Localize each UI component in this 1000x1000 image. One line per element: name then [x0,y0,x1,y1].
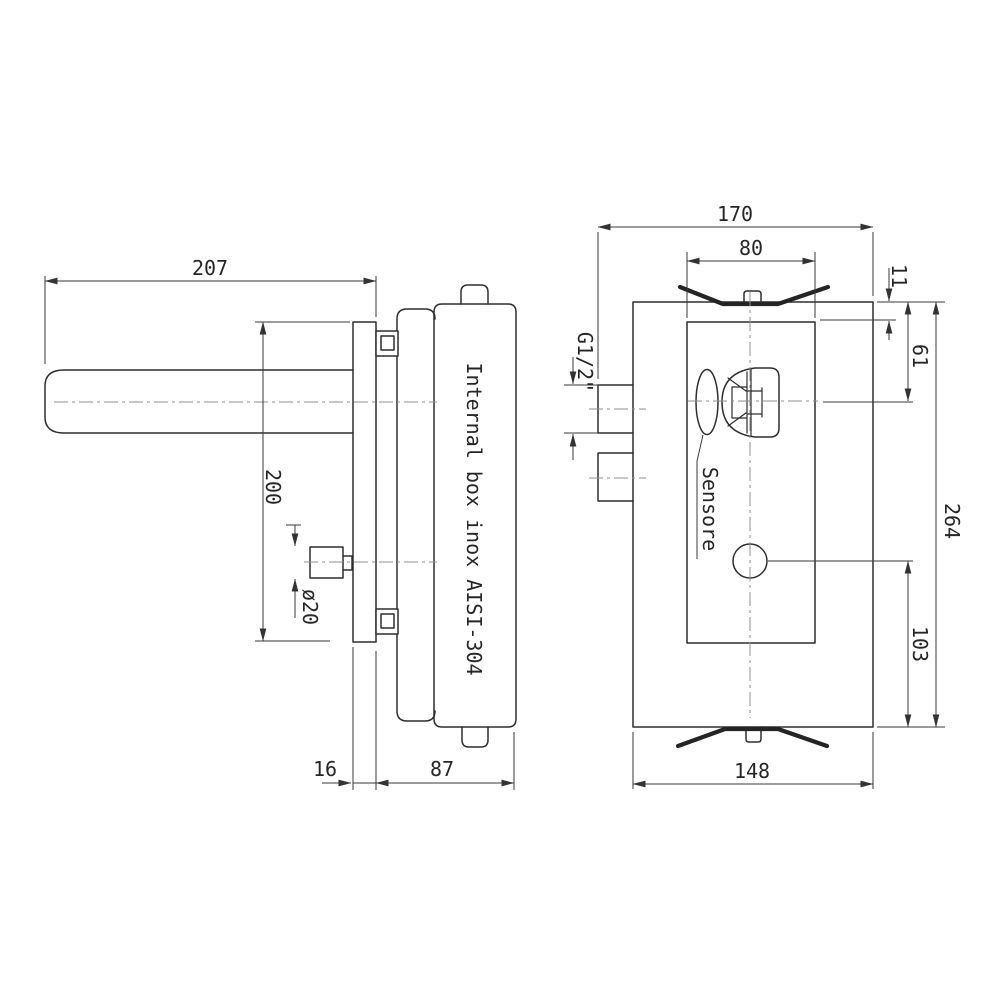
internal-box-label: Internal box inox AISI-304 [462,362,486,675]
dim-plate-thickness: 16 [313,647,376,790]
pipe-stub-top [461,285,488,304]
cad-drawing: Internal box inox AISI-304 207 200 ø20 [0,0,1000,1000]
front-view-dimensions: 170 80 11 61 264 103 [564,202,964,789]
dimension-value: 61 [908,344,932,368]
mounting-clip-bottom [376,609,398,634]
dimension-value: 87 [430,757,454,781]
sensor-label: Sensore [698,467,722,551]
dimension-value: 11 [887,264,911,288]
dimension-value: ø20 [298,589,322,625]
dimension-value: 170 [717,202,753,226]
mixer-handle-details [728,369,762,436]
dim-overall-height: 264 [936,302,964,727]
anchor-tab-top [744,291,761,303]
thread-label: G1/2" [573,332,597,392]
dim-body-width: 148 [633,732,873,789]
dimension-value: 103 [908,626,932,662]
dimension-value: 148 [734,759,770,783]
front-view: 170 80 11 61 264 103 [564,202,964,789]
dimension-value: 207 [192,256,228,280]
extension-lines [687,252,815,318]
dim-spout-length: 207 [45,256,376,364]
dim-box-depth: 87 [376,732,514,790]
dim-thread-size: G1/2" [564,332,600,460]
dim-overall-width: 170 [598,202,873,379]
side-view: Internal box inox AISI-304 207 200 ø20 [45,256,516,790]
side-view-dimensions: 207 200 ø20 16 87 [45,256,514,790]
dim-spout-axis: 61 [908,302,932,401]
dim-knob-diameter: ø20 [286,525,322,625]
sensor-window [696,370,718,435]
box-inner-shell [397,309,435,721]
pipe-stub-bottom [462,727,488,747]
outer-body [633,302,873,727]
dimension-value: 200 [261,469,285,505]
front-view-geometry [598,291,873,742]
wall-plate [353,322,376,642]
mounting-clip-top [376,331,398,356]
dimension-value: 16 [313,757,337,781]
extension-lines [45,276,376,364]
side-view-centerlines [54,402,437,562]
side-view-geometry [45,285,516,747]
extension-lines [353,647,376,790]
dimension-value: 80 [739,236,763,260]
technical-drawing-sheet: Internal box inox AISI-304 207 200 ø20 [0,0,1000,1000]
inlet-connector-bottom [598,453,633,501]
dimension-value: 264 [940,503,964,539]
wing-bottom [678,729,827,746]
sensor-callout: Sensore [697,435,722,559]
dim-hole-offset: 103 [908,561,932,727]
